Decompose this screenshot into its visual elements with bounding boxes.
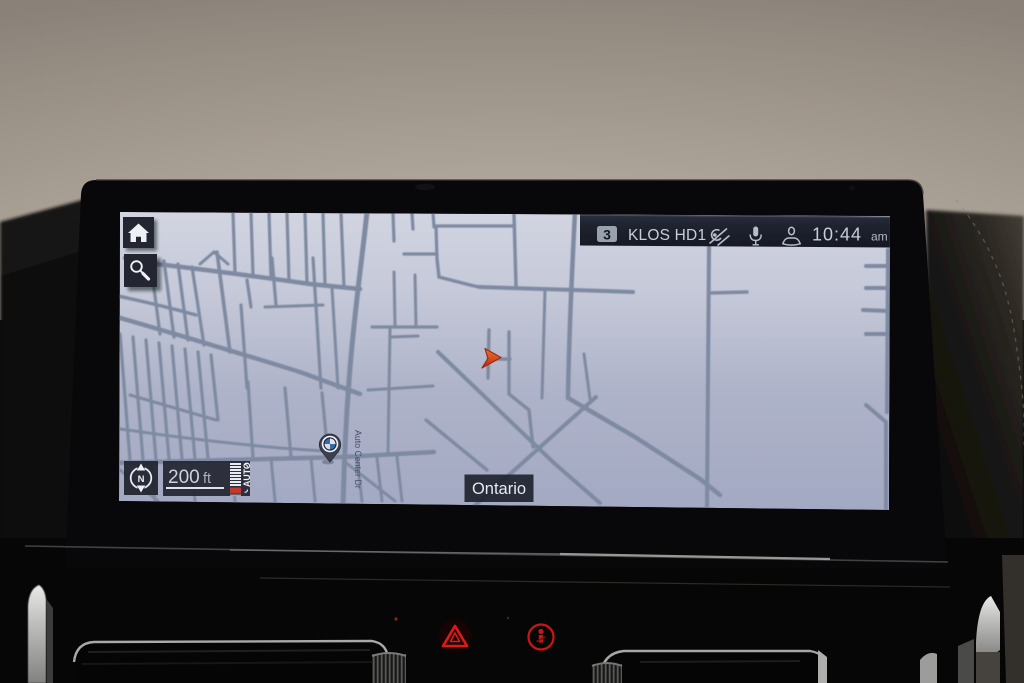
svg-text:Ontario: Ontario (472, 480, 526, 498)
svg-text:200: 200 (168, 467, 200, 488)
svg-text:KLOS HD1: KLOS HD1 (628, 227, 706, 244)
svg-text:3: 3 (603, 227, 611, 243)
svg-text:10:44: 10:44 (812, 225, 862, 245)
svg-text:Auto Center Dr: Auto Center Dr (353, 430, 363, 489)
svg-text:am: am (871, 230, 888, 244)
svg-text:ft: ft (203, 471, 211, 487)
svg-text:N: N (138, 474, 145, 485)
